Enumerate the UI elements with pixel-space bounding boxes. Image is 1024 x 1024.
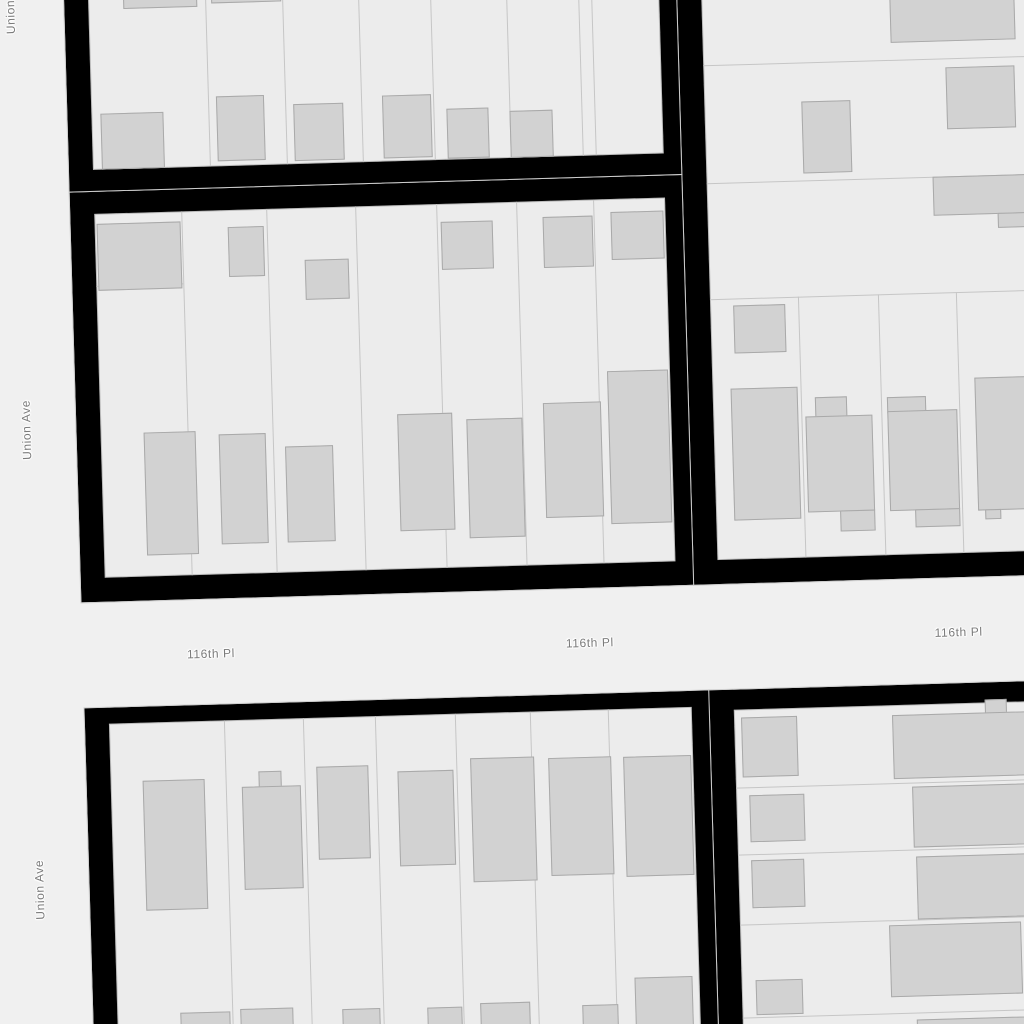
street-label-116th-pl: 116th Pl xyxy=(566,635,614,650)
building-footprint xyxy=(509,110,553,158)
building-footprint xyxy=(933,174,1024,216)
building-footprint xyxy=(610,211,664,261)
building-footprint xyxy=(607,369,672,524)
building-footprint xyxy=(397,413,455,532)
building-footprint xyxy=(756,979,804,1015)
building-footprint xyxy=(143,779,209,911)
building-footprint xyxy=(97,221,183,290)
building-footprint xyxy=(974,376,1024,511)
building-footprint xyxy=(543,216,594,268)
building-footprint xyxy=(888,0,1015,43)
building-footprint xyxy=(180,1011,232,1024)
building-footprint xyxy=(889,922,1023,998)
building-footprint xyxy=(305,259,350,300)
building-footprint xyxy=(548,756,614,876)
building-footprint xyxy=(840,510,876,532)
building-footprint xyxy=(945,65,1016,129)
building-footprint xyxy=(751,859,805,909)
building-footprint xyxy=(240,1008,295,1024)
building-footprint xyxy=(397,770,456,867)
street-label-116th-pl: 116th Pl xyxy=(934,625,982,640)
building-footprint xyxy=(543,401,604,518)
building-footprint xyxy=(242,785,304,890)
building-footprint xyxy=(316,765,371,859)
building-footprint xyxy=(892,710,1024,779)
building-footprint xyxy=(382,94,433,158)
building-footprint xyxy=(441,220,494,269)
street-label-union-ave: Union Ave xyxy=(2,0,18,34)
street-label-116th-pl: 116th Pl xyxy=(187,646,235,661)
building-footprint xyxy=(480,1002,532,1024)
building-footprint xyxy=(916,852,1024,919)
street-label-union-ave: Union Ave xyxy=(32,860,48,920)
building-footprint xyxy=(749,794,805,843)
building-footprint xyxy=(228,226,265,277)
building-footprint xyxy=(582,1004,620,1024)
building-footprint xyxy=(427,1007,464,1024)
building-footprint xyxy=(470,756,538,882)
building-footprint xyxy=(285,445,336,542)
building-footprint xyxy=(985,509,1001,519)
building-footprint xyxy=(801,100,852,173)
building-footprint xyxy=(915,508,960,527)
building-footprint xyxy=(100,112,165,170)
building-footprint xyxy=(144,431,200,555)
building-footprint xyxy=(219,433,269,544)
street-label-union-ave: Union Ave xyxy=(19,400,35,460)
building-footprint xyxy=(887,409,960,511)
building-footprint xyxy=(731,387,802,521)
building-footprint xyxy=(446,108,489,159)
building-footprint xyxy=(216,95,266,161)
building-footprint xyxy=(805,415,875,513)
building-footprint xyxy=(733,304,786,353)
building-footprint xyxy=(342,1008,382,1024)
building-footprint xyxy=(912,782,1024,847)
map-rotor: 116th Pl116th Pl116th PlUnion AveUnion A… xyxy=(0,0,1024,1024)
building-footprint xyxy=(623,755,694,877)
building-footprint xyxy=(293,103,345,161)
building-footprint xyxy=(741,716,799,778)
building-footprint xyxy=(466,418,525,539)
building-footprint xyxy=(634,976,694,1024)
building-footprint xyxy=(998,212,1024,228)
map-viewport[interactable]: 116th Pl116th Pl116th PlUnion AveUnion A… xyxy=(0,0,1024,1024)
